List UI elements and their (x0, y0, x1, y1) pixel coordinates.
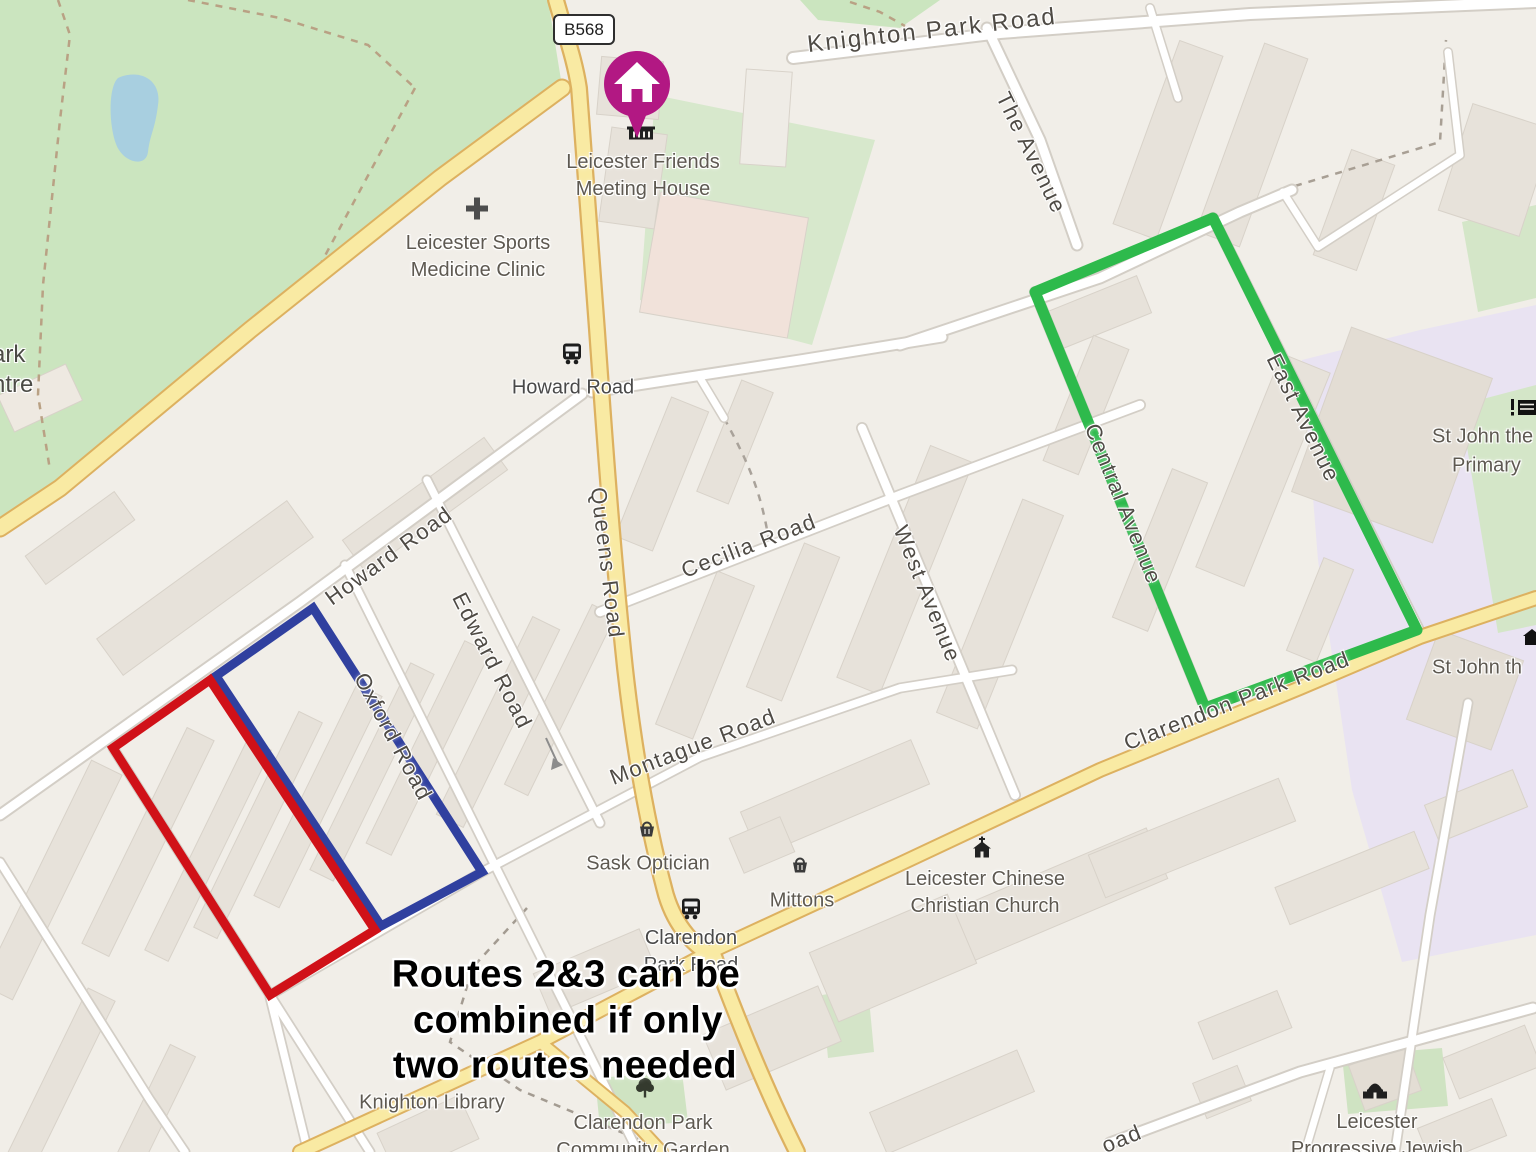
edge-label-park-fragment: ark (0, 341, 25, 369)
poi-label-line: Clarendon Park (556, 1110, 729, 1137)
edge-label-centre-fragment: ntre (0, 371, 33, 399)
road-ref-badge: B568 (553, 14, 615, 45)
poi-label-mittons: Mittons (770, 888, 834, 915)
map-canvas[interactable] (0, 0, 1536, 1152)
note-line-2: combined if only (413, 1000, 723, 1043)
poi-label-line: Leicester Friends (566, 149, 719, 176)
poi-label-knighton-library: Knighton Library (359, 1090, 505, 1117)
poi-label-line: Meeting House (566, 176, 719, 203)
poi-label-sask-optician: Sask Optician (586, 851, 709, 878)
poi-label-line: Community Garden (556, 1137, 729, 1152)
poi-label-line: Medicine Clinic (406, 257, 551, 284)
bus-stop-label-howard-road: Howard Road (512, 375, 634, 402)
church-icon (969, 836, 995, 867)
poi-label-st-john-partial: St John th (1432, 655, 1522, 682)
poi-label-st-john-primary-line2: Primary (1452, 453, 1521, 480)
poi-label-line: Leicester Sports (406, 230, 551, 257)
poi-label-clarendon-park-community-garden: Clarendon Park Community Garden (556, 1110, 729, 1152)
poi-label-line: Leicester Chinese (905, 866, 1065, 893)
poi-label-st-john-primary-line1: St John the (1432, 424, 1533, 451)
poi-label-leicester-friends-meeting-house: Leicester Friends Meeting House (566, 149, 719, 203)
bus-stop-label-line: Clarendon (644, 925, 739, 952)
note-line-1: Routes 2&3 can be (392, 954, 741, 997)
map-viewport[interactable]: B568 Knighton Park Road The Avenue Queen… (0, 0, 1536, 1152)
poi-label-leicester-chinese-christian-church: Leicester Chinese Christian Church (905, 866, 1065, 920)
poi-label-leicester-sports-medicine-clinic: Leicester Sports Medicine Clinic (406, 230, 551, 284)
poi-label-line: Leicester (1291, 1109, 1463, 1136)
poi-label-line: Christian Church (905, 893, 1065, 920)
note-line-3: two routes needed (393, 1045, 737, 1088)
bus-stop-icon (678, 896, 704, 927)
bus-stop-icon (559, 341, 585, 372)
poi-label-line: Progressive Jewish (1291, 1136, 1463, 1152)
poi-label-leicester-progressive-jewish: Leicester Progressive Jewish (1291, 1109, 1463, 1152)
synagogue-icon (1361, 1077, 1389, 1108)
home-marker-icon[interactable] (598, 48, 676, 145)
clinic-cross-icon (463, 195, 491, 228)
school-icon (1510, 398, 1536, 423)
shop-basket-icon (788, 853, 812, 882)
church-icon (1522, 628, 1536, 653)
shop-basket-icon (635, 817, 659, 846)
